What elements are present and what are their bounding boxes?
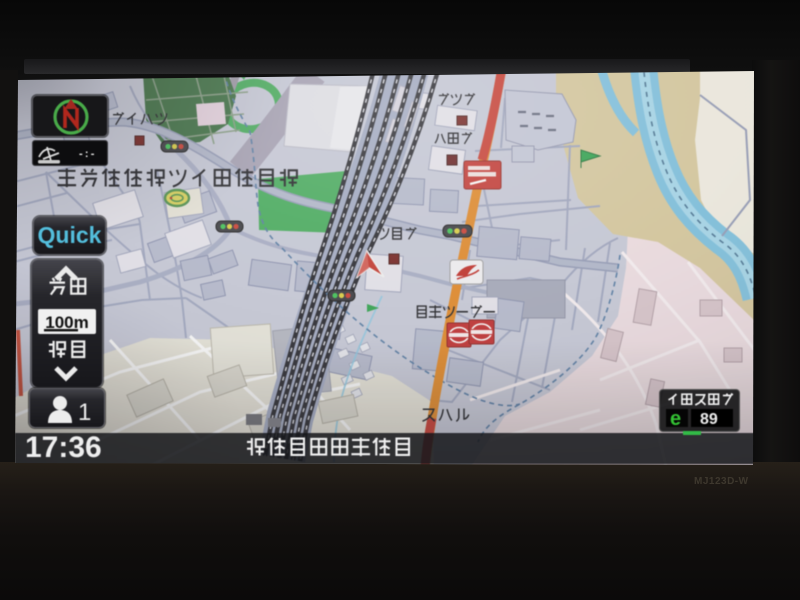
svg-text:e: e — [670, 408, 681, 430]
svg-text:- : -: - : - — [79, 148, 95, 160]
svg-text:89: 89 — [700, 411, 718, 428]
svg-text:1: 1 — [78, 399, 91, 426]
